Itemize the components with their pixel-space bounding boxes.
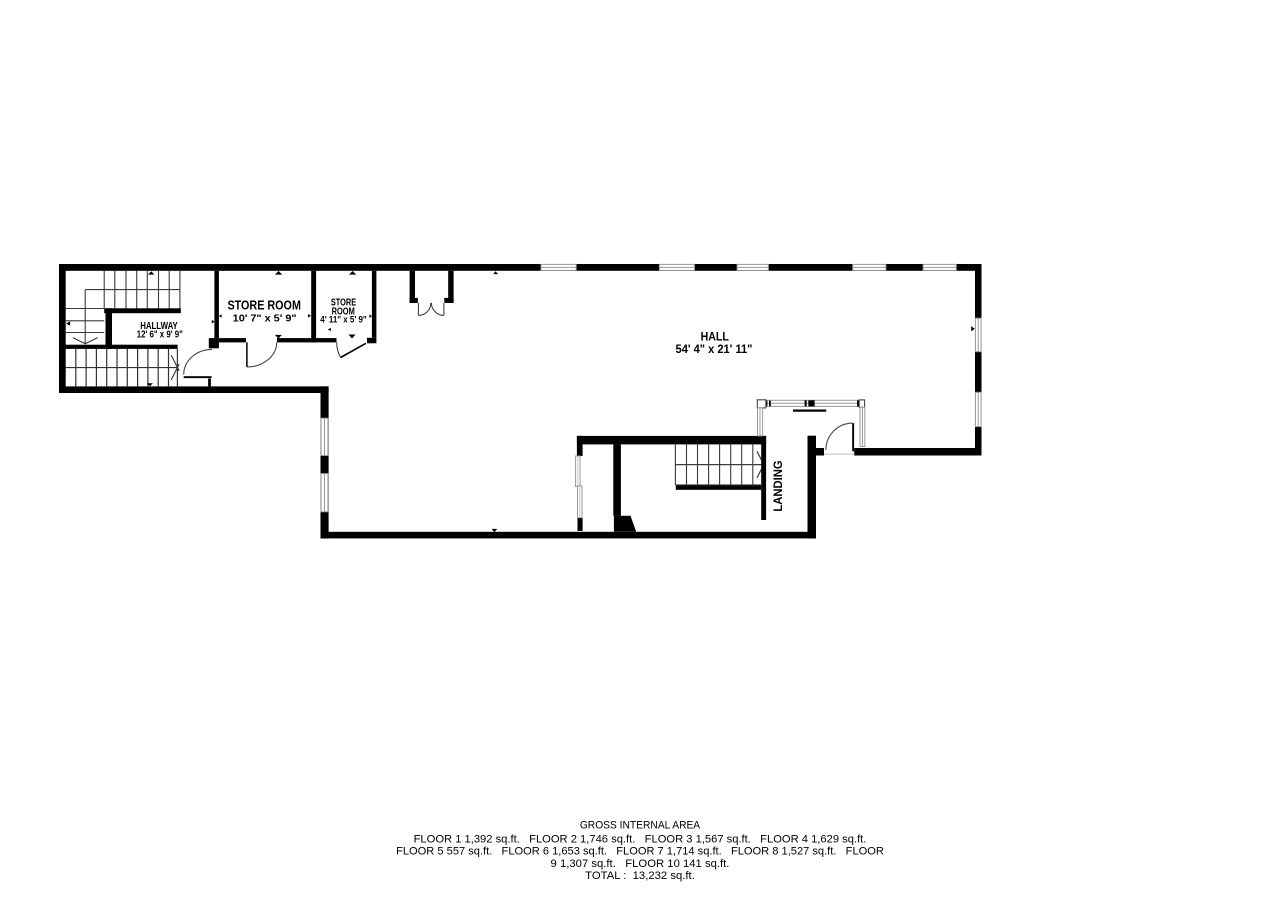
svg-text:FLOOR 5 557 sq.ft. FLOOR 6 1: FLOOR 5 557 sq.ft. FLOOR 6 1,653 sq.ft. … bbox=[396, 846, 884, 858]
svg-text:FLOOR 1 1,392 sq.ft. FLOOR 2: FLOOR 1 1,392 sq.ft. FLOOR 2 1,746 sq.ft… bbox=[414, 834, 867, 846]
svg-text:54' 4" x 21' 11": 54' 4" x 21' 11" bbox=[676, 342, 753, 356]
svg-text:STORE ROOM: STORE ROOM bbox=[227, 298, 301, 313]
svg-text:4' 11" x 5' 9": 4' 11" x 5' 9" bbox=[320, 315, 366, 325]
svg-text:10' 7" x 5' 9": 10' 7" x 5' 9" bbox=[233, 313, 297, 324]
svg-text:9 1,307 sq.ft. FLOOR 10 141: 9 1,307 sq.ft. FLOOR 10 141 sq.ft. bbox=[551, 858, 730, 870]
svg-text:12' 6" x 9' 9": 12' 6" x 9' 9" bbox=[137, 329, 183, 340]
svg-text:TOTAL : 13,232 sq.ft.: TOTAL : 13,232 sq.ft. bbox=[585, 870, 695, 882]
svg-text:LANDING: LANDING bbox=[773, 460, 785, 511]
svg-text:GROSS INTERNAL AREA: GROSS INTERNAL AREA bbox=[580, 819, 701, 831]
